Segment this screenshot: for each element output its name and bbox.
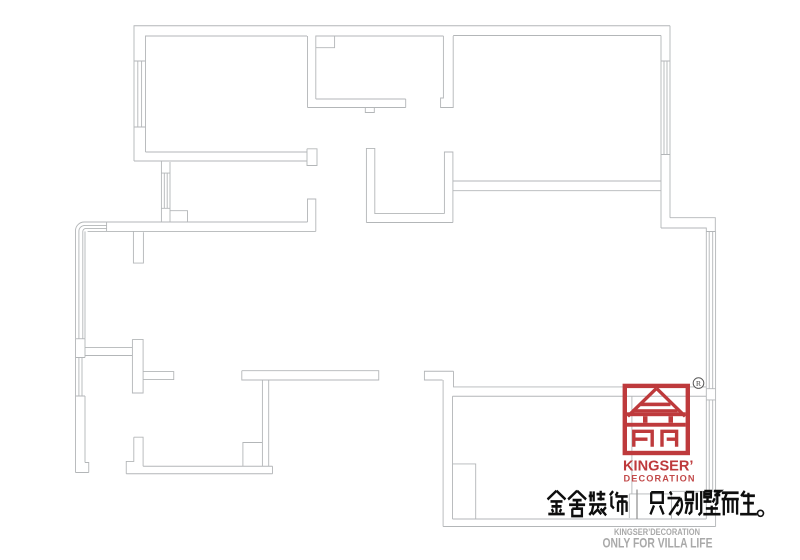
svg-text:DECORATION: DECORATION	[624, 474, 695, 484]
svg-text:KINGSER’: KINGSER’	[623, 458, 694, 474]
svg-text:R: R	[696, 379, 702, 388]
svg-text:ONLY FOR VILLA LIFE: ONLY FOR VILLA LIFE	[603, 536, 713, 551]
